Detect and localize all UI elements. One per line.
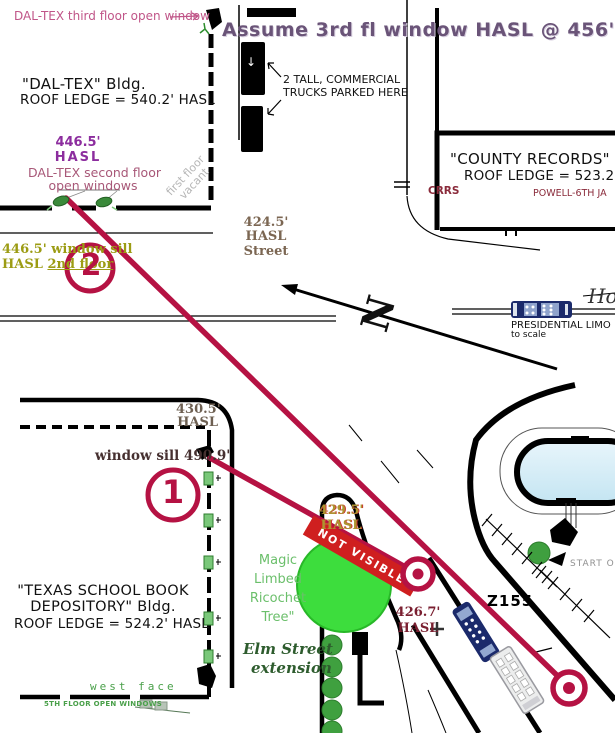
to-scale-label: to scale	[511, 331, 546, 341]
elm-thin-lane-a	[396, 650, 412, 733]
dal-tex-roof-ledge: ROOF LEDGE = 540.2' HASL	[20, 93, 215, 108]
crrs-label: CRRS	[428, 186, 459, 197]
main-street-lines-left	[0, 316, 336, 321]
black-post-marker	[352, 632, 368, 655]
houston-street-label: Ho	[588, 286, 615, 308]
dealey-plaza-trajectory-map: NOT VISIBLE DAL-TEX third floor open win…	[0, 0, 615, 733]
lane-dashes-upper	[349, 425, 433, 483]
trucks-label-2: TRUCKS PARKED HERE	[283, 87, 408, 99]
county-records-name: "COUNTY RECORDS" Bldg.	[450, 151, 615, 167]
truck-down-arrow-icon: ↓	[246, 56, 256, 69]
elm-street-label-1: Elm Street	[243, 641, 333, 657]
circle-2-number: 2	[79, 250, 103, 282]
pool-tab-top	[571, 436, 589, 444]
hasl-446-word: HASL	[48, 151, 108, 165]
hasl-426-word: HASL	[394, 622, 442, 636]
impact-bullseye-1	[403, 559, 433, 589]
fifth-floor-label: 5TH FLOOR OPEN WINDOWS	[44, 701, 162, 709]
county-records-building	[437, 133, 615, 236]
truck-pointer-arrows	[268, 63, 281, 115]
truck-2-icon	[241, 106, 263, 152]
tsbd-corner-marker	[197, 664, 216, 688]
presidential-limo-icon	[510, 300, 574, 320]
impact-bullseye-2	[553, 672, 585, 704]
lane-dash-small	[536, 648, 552, 652]
ricochet-tree-label: Magic Limbed Ricochet Tree"	[243, 551, 313, 627]
window-sill-490-label: window sill 490.9'	[95, 449, 230, 464]
second-floor-label-2: open windows	[28, 179, 158, 193]
pool-icon	[517, 441, 615, 503]
street-word: Street	[240, 245, 292, 259]
steps-arrow-icon	[548, 552, 566, 566]
dal-tex-third-floor-label: DAL-TEX third floor open window	[14, 10, 210, 23]
truck-bar-icon	[247, 8, 296, 17]
elm-lane-line-2	[413, 625, 479, 733]
tree-label-line2: Limbed	[243, 570, 313, 589]
houston-main-corner-curb	[407, 196, 540, 250]
north-arrow-head	[281, 284, 298, 295]
sill-446-hasl: HASL	[2, 257, 43, 272]
hasl-429-value: 429.5'	[316, 504, 366, 518]
window-plus-ticks	[216, 475, 221, 659]
hasl-426-value: 426.7'	[394, 606, 442, 620]
hasl-429-word: HASL	[316, 519, 366, 533]
assume-note: Assume 3rd fl window HASL @ 456'	[222, 20, 615, 41]
tsbd-window-markers	[204, 472, 221, 663]
hasl-446-value: 446.5'	[48, 136, 108, 150]
tsbd-name-2: DEPOSITORY" Bldg.	[14, 600, 192, 616]
hasl-424-word: HASL	[240, 230, 292, 244]
sill-446-line1: 446.5' window sill	[2, 243, 132, 257]
dal-tex-name: "DAL-TEX" Bldg.	[22, 76, 146, 92]
hasl-430-word: HASL	[176, 416, 218, 430]
tsbd-building	[20, 427, 216, 713]
elm-street-label-2: extension	[251, 660, 332, 676]
trucks-label-1: 2 TALL, COMMERCIAL	[283, 74, 400, 86]
window-sparkle-icon	[200, 23, 209, 34]
tsbd-name-1: "TEXAS SCHOOL BOOK	[14, 584, 192, 600]
tree-label-line3: Ricochet	[243, 589, 313, 608]
elm-extension-curb	[20, 400, 232, 688]
tsbd-roof-ledge: ROOF LEDGE = 524.2' HASL	[14, 617, 192, 632]
powell-label: POWELL-6TH JA	[533, 189, 607, 199]
county-records-roof-ledge: ROOF LEDGE = 523.2' HASL	[464, 169, 615, 184]
tree-label-line1: Magic	[243, 551, 313, 570]
tree-label-line4: Tree"	[243, 608, 313, 627]
curb-l-shape	[360, 655, 384, 703]
z155-label: Z155	[487, 593, 533, 609]
start-label: START O	[570, 560, 615, 570]
hasl-424-value: 424.5'	[240, 216, 292, 230]
elm-thin-lane-b	[428, 690, 446, 733]
west-face-label: west face	[90, 681, 177, 693]
pergola-marker	[550, 518, 578, 546]
circle-1-number: 1	[160, 475, 186, 510]
